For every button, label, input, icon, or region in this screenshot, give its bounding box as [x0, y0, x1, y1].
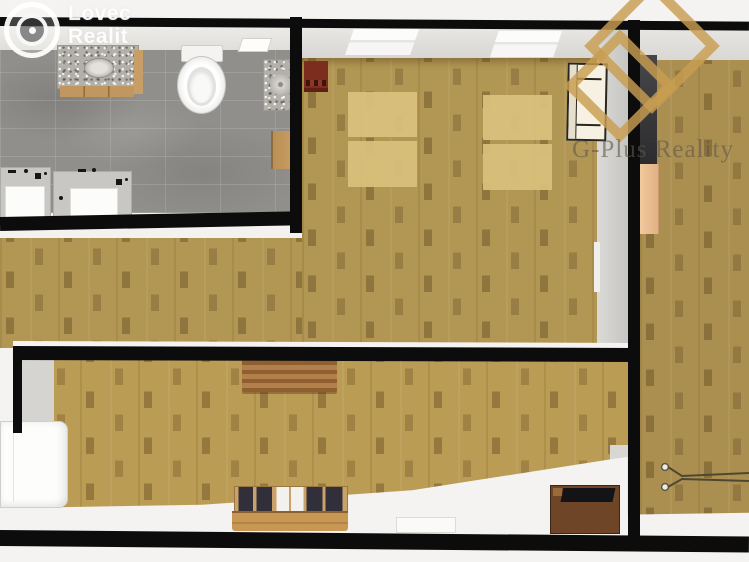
floor-mat [348, 141, 417, 187]
agency-name-line1: Lovec [68, 3, 131, 26]
wall-control-mark [8, 170, 16, 173]
inner-wallface-highlight [594, 242, 600, 292]
sideboard-front [232, 511, 348, 531]
storage-chest [550, 485, 620, 534]
wall-left-stub [13, 347, 22, 433]
door-threshold [396, 517, 456, 533]
toilet-seat [187, 67, 216, 106]
sideboard-top [234, 486, 348, 513]
floorplan-render: Lovec Realit G-Plus Reality [0, 0, 749, 562]
wall-shelf [238, 38, 273, 52]
wall-control-mark [78, 169, 86, 172]
vanity-basin [84, 58, 114, 78]
storage-chest-opening [561, 488, 616, 502]
floor-mat [348, 92, 417, 137]
lower-room-corner-wallface [22, 358, 54, 424]
window-1 [345, 29, 419, 55]
radiator [658, 456, 749, 498]
corner-sink-basin [270, 74, 291, 95]
wall-middle [13, 346, 640, 362]
agency-name: Lovec Realit [68, 3, 131, 48]
red-cabinet-detail [306, 80, 326, 86]
agency-watermark: Lovec Realit [4, 0, 131, 58]
wall-bathroom-right [290, 17, 302, 233]
red-cabinet [304, 61, 328, 92]
floor-mat [483, 95, 552, 140]
sofa [0, 421, 68, 508]
wall-control-mark [92, 168, 96, 172]
agency-name-line2: Realit [68, 26, 131, 49]
washing-machine-1 [0, 167, 51, 222]
coffee-table [242, 356, 337, 392]
brand-name: G-Plus Reality [553, 136, 749, 164]
agency-logo-icon [4, 2, 60, 58]
vanity-side-panel [134, 50, 143, 94]
toilet-bowl [177, 56, 226, 114]
sofa-seam [13, 426, 14, 502]
storage-chest-edge [553, 488, 562, 496]
brand-watermark: G-Plus Reality [548, 0, 749, 175]
vanity-drawers [60, 86, 134, 97]
corridor-floor [0, 238, 302, 348]
floor-mat [483, 144, 552, 190]
wall-control-mark [24, 169, 28, 173]
